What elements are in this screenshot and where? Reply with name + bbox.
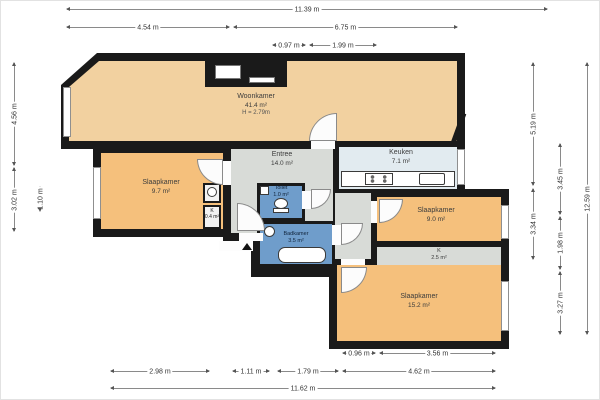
dim-label: 1.79 m	[295, 369, 320, 376]
door-opening	[223, 161, 231, 185]
dim-top-right: 6.75 m	[234, 27, 457, 28]
dim-right-3: 3.45 m	[560, 144, 561, 214]
door-opening	[311, 141, 335, 149]
window	[457, 149, 465, 185]
dim-label: 3.56 m	[425, 351, 450, 358]
dim-label: 11.39 m	[293, 7, 322, 14]
dim-bottom-small-1: 0.96 m	[343, 353, 375, 354]
dim-bottom-4: 4.62 m	[343, 371, 495, 372]
dim-right-4: 1.98 m	[560, 217, 561, 269]
door-opening	[239, 233, 263, 241]
dim-top-small-2: 1.99 m	[310, 45, 376, 46]
dim-label: 3.02 m	[12, 187, 19, 212]
room-closet-right	[377, 247, 501, 267]
dim-bottom-3: 1.79 m	[278, 371, 338, 372]
dim-label: 0.97 m	[276, 43, 301, 50]
dim-bottom-total: 11.62 m	[111, 388, 495, 389]
dim-bottom-2: 1.11 m	[233, 371, 269, 372]
dim-label: 3.34 m	[531, 211, 538, 236]
entrance-arrow-icon	[242, 243, 252, 250]
dim-right-1: 5.19 m	[533, 63, 534, 185]
dim-label: 4.54 m	[135, 25, 160, 32]
dim-label: 1.10 m	[38, 186, 45, 211]
dim-label: 3.27 m	[558, 290, 565, 315]
shaft-vent	[249, 77, 275, 83]
door-opening	[332, 225, 341, 245]
dim-label: 1.11 m	[239, 369, 264, 376]
dim-left-3: 1.10 m	[40, 187, 41, 211]
sink-icon	[419, 173, 445, 185]
window	[501, 281, 509, 331]
door-opening	[302, 191, 311, 209]
dim-right-5: 3.27 m	[560, 272, 561, 334]
dim-label: 6.75 m	[333, 25, 358, 32]
toilet-tank	[273, 208, 289, 213]
dim-top-small-1: 0.97 m	[273, 45, 305, 46]
dim-right-2: 3.34 m	[533, 189, 534, 259]
dim-label: 11.62 m	[289, 386, 318, 393]
closet-left-box	[203, 205, 221, 229]
window	[501, 205, 509, 239]
dim-left-2: 3.02 m	[14, 168, 15, 231]
floorplan: K 0.4 m² Woonkamer 41.4 m² H = 2.79m Ent…	[0, 0, 600, 400]
dim-label: 4.62 m	[406, 369, 431, 376]
dim-label: 5.19 m	[531, 111, 538, 136]
window	[93, 167, 101, 219]
boiler-icon	[207, 187, 217, 197]
door-opening	[371, 201, 377, 223]
window	[63, 87, 71, 137]
bathtub-icon	[278, 247, 326, 263]
door-opening	[341, 259, 365, 265]
dim-label: 2.98 m	[147, 369, 172, 376]
dim-label: 1.98 m	[558, 230, 565, 255]
dim-label: 1.99 m	[330, 43, 355, 50]
dim-label: 12.59 m	[585, 184, 592, 213]
dim-label: 3.45 m	[558, 166, 565, 191]
dim-bottom-1: 2.98 m	[111, 371, 209, 372]
dim-top-left: 4.54 m	[67, 27, 229, 28]
dim-right-total: 12.59 m	[587, 63, 588, 334]
basin-icon	[264, 226, 275, 237]
dim-left-1: 4.56 m	[14, 63, 15, 165]
stove-icon	[365, 173, 393, 185]
dim-top-total: 11.39 m	[67, 9, 547, 10]
corner-basin-icon	[260, 186, 269, 195]
dim-label: 0.96 m	[346, 351, 371, 358]
shaft-hatch	[215, 65, 241, 79]
room-entree-main	[231, 149, 333, 185]
dim-label: 4.56 m	[12, 101, 19, 126]
dim-bottom-small-2: 3.56 m	[380, 353, 495, 354]
